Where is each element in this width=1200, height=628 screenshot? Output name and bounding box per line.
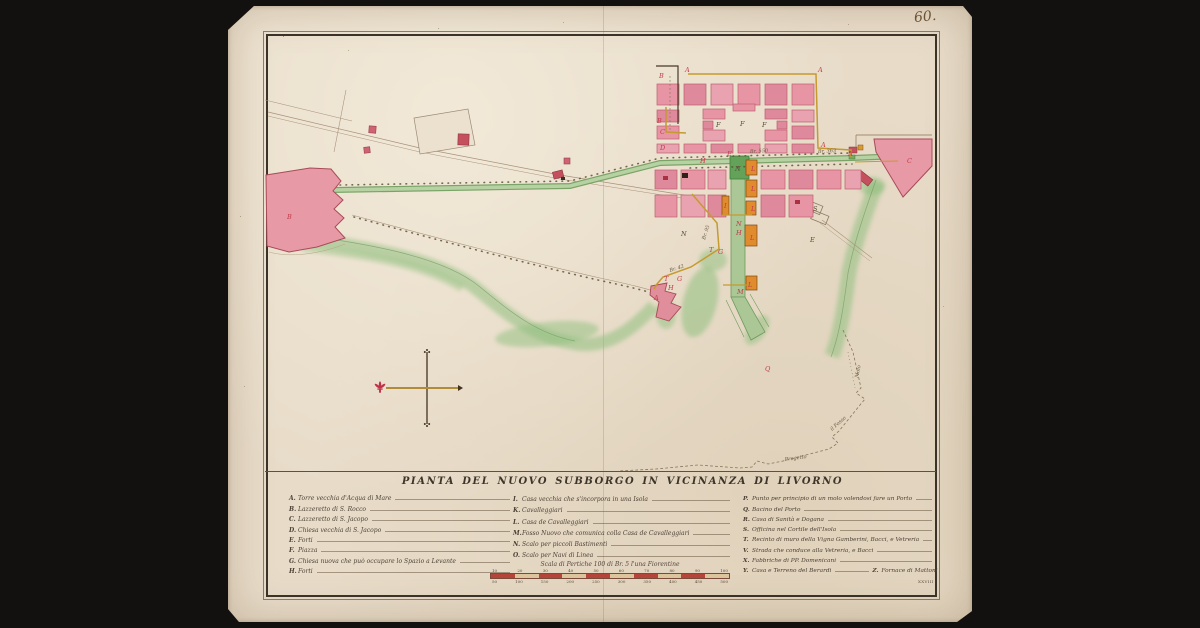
- legend-letter: C.: [289, 516, 298, 523]
- legend-label: Scalo per Navi di Linea: [522, 552, 593, 559]
- legend-letter: E.: [289, 537, 298, 544]
- legend-letter: F.: [289, 547, 298, 554]
- map-letter: M: [736, 288, 744, 296]
- legend-label: Torre vecchia d'Acqua di Mare: [298, 495, 391, 502]
- map-letter: L: [749, 234, 754, 242]
- map-reference-letters: B A A B C D A A F F F E H N L L L I N H: [286, 66, 912, 373]
- legend-label: Casa di Sanità e Dogana: [752, 517, 824, 523]
- map-letter: G: [718, 248, 723, 256]
- legend-leader-line: [395, 499, 510, 500]
- map-letter: L: [750, 185, 755, 193]
- paper-specks: [228, 6, 229, 7]
- legend-leader-line: [804, 510, 932, 511]
- legend-leader-line: [652, 500, 730, 501]
- tick-label: 30: [543, 568, 548, 573]
- tick-label: 500: [720, 579, 728, 584]
- legend-leader-line: [321, 551, 510, 552]
- legend-letter: Q.: [743, 507, 752, 513]
- map-letter: A: [653, 294, 659, 302]
- scale-bottom-ticks: 50100150200250300350400450500: [490, 579, 730, 584]
- legend-leader-line: [593, 523, 730, 524]
- legend-leader-line: [877, 551, 932, 552]
- legend-entry: H.Forti: [289, 565, 513, 575]
- legend-letter: V.: [743, 548, 752, 554]
- legend-letter: H.: [289, 568, 298, 575]
- map-letter: F: [715, 121, 721, 129]
- upper-town-blocks: [657, 84, 814, 153]
- fort-lazzeretto-s-rocco: [266, 168, 345, 255]
- mole-annotation: Molo: [854, 365, 863, 380]
- legend-panel: PIANTA DEL NUOVO SUBBORGO IN VICINANZA D…: [265, 471, 936, 599]
- legend-leader-line: [567, 511, 731, 512]
- legend-letter: B.: [289, 506, 298, 513]
- compass-east-arrow: [458, 385, 463, 391]
- legend-label: Bacino del Porto: [752, 507, 800, 513]
- legend-label: Cavalleggiari: [522, 507, 563, 514]
- legend-letter: T.: [743, 537, 752, 543]
- legend-leader-line: [923, 540, 932, 541]
- legend-letter: M.: [513, 530, 522, 537]
- map-letter: T: [664, 275, 669, 283]
- legend-label: Strada che conduce alla Vetreria, e Bacc…: [752, 548, 873, 554]
- map-letter: D: [659, 144, 666, 152]
- compass-rose: [374, 349, 463, 427]
- map-letter: C: [660, 128, 665, 136]
- map-letter: B: [656, 117, 662, 125]
- tick-label: 150: [541, 579, 549, 584]
- legend-letter: K.: [513, 507, 522, 514]
- legend-letter: D.: [289, 527, 298, 534]
- tick-label: 100: [720, 568, 728, 573]
- legend-leader-line: [372, 520, 510, 521]
- tick-label: 60: [619, 568, 624, 573]
- legend-leader-line: [693, 534, 730, 535]
- legend-label: Fosso Nuovo che comunica colla Casa de C…: [522, 530, 689, 537]
- legend-letter: P.: [743, 496, 752, 502]
- legend-entry: V.Strada che conduce alla Vetreria, e Ba…: [743, 543, 935, 553]
- legend-letter: R.: [743, 517, 752, 523]
- legend-leader-line: [916, 499, 932, 500]
- legend-label: Lazzeretto di S. Rocco: [298, 506, 366, 513]
- map-paper-sheet: 60.: [228, 6, 972, 622]
- legend-entry: T.Recinto di muro della Vigna Gamberini,…: [743, 533, 935, 543]
- tick-label: 70: [644, 568, 649, 573]
- legend-column-3: P.Punto per principio di un molo volendo…: [743, 492, 935, 574]
- legend-letter: A.: [289, 495, 298, 502]
- legend-label: Casa de Cavalleggiari: [522, 519, 589, 526]
- legend-letter: G.: [289, 558, 298, 565]
- map-letter: A: [847, 150, 853, 158]
- legend-entry: G.Chiesa nuova che può occupare lo Spazi…: [289, 554, 513, 564]
- tick-label: 400: [669, 579, 677, 584]
- legend-leader-line: [611, 545, 730, 546]
- legend-entry: R.Casa di Sanità e Dogana: [743, 513, 935, 523]
- tick-label: 200: [566, 579, 574, 584]
- measure-annotation: Br. 550: [749, 148, 769, 155]
- map-title: PIANTA DEL NUOVO SUBBORGO IN VICINANZA D…: [287, 476, 958, 487]
- legend-entry: D.Chiesa vecchia di S. Jacopo: [289, 523, 513, 533]
- legend-label: Chiesa nuova che può occupare lo Spazio …: [298, 558, 456, 565]
- tick-label: 50: [492, 579, 497, 584]
- tick-label: 90: [695, 568, 700, 573]
- tick-label: 350: [643, 579, 651, 584]
- tick-label: 40: [568, 568, 573, 573]
- legend-leader-line: [840, 530, 932, 531]
- measure-annotation: Br. 95: [701, 224, 712, 241]
- compass-fleur-de-lis: [374, 381, 386, 393]
- tick-label: 20: [517, 568, 522, 573]
- map-letter: B: [286, 213, 292, 221]
- tick-label: 300: [618, 579, 626, 584]
- legend-label: Punto per principio di un molo volendosi…: [752, 496, 912, 502]
- legend-letter: S.: [743, 527, 752, 533]
- map-letter: S: [813, 205, 818, 213]
- map-letter: H: [667, 284, 674, 292]
- tick-label: 50: [593, 568, 598, 573]
- legend-label: Casa vecchia che s'incorpora in una Isol…: [522, 496, 648, 503]
- legend-letter: L.: [513, 519, 522, 526]
- tick-label: 100: [515, 579, 523, 584]
- tick-label: 250: [592, 579, 600, 584]
- legend-letter: N.: [513, 541, 522, 548]
- folio-mark: XXVIII: [918, 579, 934, 584]
- map-letter: N: [734, 165, 741, 173]
- map-letter: T: [709, 246, 714, 254]
- map-letter: H: [699, 157, 706, 165]
- legend-letter: O.: [513, 552, 522, 559]
- legend-entry: P.Punto per principio di un molo volendo…: [743, 492, 935, 502]
- map-letter: B: [658, 72, 664, 80]
- legend-label: Fabbriche di PP. Domenicani: [752, 558, 836, 564]
- legend-leader-line: [597, 556, 730, 557]
- legend-entry: Q.Bacino del Porto: [743, 502, 935, 512]
- legend-entry: A.Torre vecchia d'Acqua di Mare: [289, 492, 513, 502]
- legend-label: Forti: [298, 568, 313, 575]
- legend-label: Piazza: [298, 547, 317, 554]
- legend-letter: X.: [743, 558, 752, 564]
- map-letter: N: [735, 220, 742, 228]
- legend-label: Officina nel Cortile dell'Isola: [752, 527, 836, 533]
- legend-column-2: I.Casa vecchia che s'incorpora in una Is…: [513, 492, 733, 559]
- legend-label: Recinto di muro della Vigna Gamberini, B…: [752, 537, 919, 543]
- tick-label: 80: [670, 568, 675, 573]
- map-letter: N: [680, 230, 687, 238]
- legend-entry: M.Fosso Nuovo che comunica colla Casa de…: [513, 526, 733, 537]
- legend-leader-line: [370, 510, 510, 511]
- legend-leader-line: [840, 561, 932, 562]
- legend-label: Forti: [298, 537, 313, 544]
- folio-number: 60.: [913, 8, 937, 26]
- legend-label: Lazzeretto di S. Jacopo: [298, 516, 368, 523]
- legend-entry: L.Casa de Cavalleggiari: [513, 514, 733, 525]
- map-letter: F: [739, 120, 745, 128]
- legend-label: Fornace di Mattoni: [881, 568, 937, 574]
- map-letter: A: [817, 66, 823, 74]
- legend-letter: I.: [513, 496, 522, 503]
- map-letter: A: [684, 66, 690, 74]
- map-letter: L: [750, 205, 755, 213]
- legend-entry: S.Officina nel Cortile dell'Isola: [743, 523, 935, 533]
- map-letter: G: [677, 275, 682, 283]
- legend-entry: N.Scalo per piccoli Bastimenti: [513, 537, 733, 548]
- legend-entry: K.Cavalleggiari: [513, 503, 733, 514]
- legend-entry: X.Fabbriche di PP. Domenicani: [743, 554, 935, 564]
- legend-leader-line: [835, 571, 869, 572]
- legend-letter: Y.: [743, 568, 752, 574]
- legend-entry: C.Lazzeretto di S. Jacopo: [289, 513, 513, 523]
- legend-leader-line: [385, 531, 510, 532]
- legend-entry: B.Lazzeretto di S. Rocco: [289, 502, 513, 512]
- legend-leader-line: [317, 541, 510, 542]
- tick-label: 450: [695, 579, 703, 584]
- lower-town-blocks: [655, 170, 861, 217]
- scanned-map-photo: 60.: [0, 0, 1200, 628]
- map-letter: Q: [765, 365, 771, 373]
- map-letter: E: [726, 150, 732, 158]
- legend-label: Scalo per piccoli Bastimenti: [522, 541, 607, 548]
- map-letter: E: [809, 236, 815, 244]
- legend-entry: E.Forti: [289, 534, 513, 544]
- legend-entry: O.Scalo per Navi di Linea: [513, 548, 733, 559]
- map-letter: C: [907, 157, 912, 165]
- legend-column-1: A.Torre vecchia d'Acqua di Mare B.Lazzer…: [289, 492, 513, 575]
- measure-annotation: Br. 363: [817, 148, 837, 155]
- map-letter: I: [723, 202, 727, 210]
- scale-caption: Scala di Pertiche 100 di Br. 5 l'una Fio…: [490, 561, 730, 568]
- map-letter: H: [735, 229, 742, 237]
- legend-entry-yz: Y.Casa e Terreno del Berardi Z.Fornace d…: [743, 564, 935, 574]
- scale-bar: Scala di Pertiche 100 di Br. 5 l'una Fio…: [490, 561, 730, 584]
- map-letter: F: [761, 121, 767, 129]
- map-drawing: B A A B C D A A F F F E H N L L L I N H: [263, 31, 940, 471]
- progetto-annotation: Progetto: [783, 454, 807, 463]
- tick-label: 10: [492, 568, 497, 573]
- legend-leader-line: [828, 520, 932, 521]
- legend-label: Casa e Terreno del Berardi: [752, 568, 831, 574]
- legend-label: Chiesa vecchia di S. Jacopo: [298, 527, 381, 534]
- map-letter: L: [750, 165, 755, 173]
- field-outline: [414, 109, 475, 154]
- map-letter: L: [747, 281, 752, 289]
- legend-leader-line: [317, 572, 510, 573]
- legend-entry: I.Casa vecchia che s'incorpora in una Is…: [513, 492, 733, 503]
- legend-entry: F.Piazza: [289, 544, 513, 554]
